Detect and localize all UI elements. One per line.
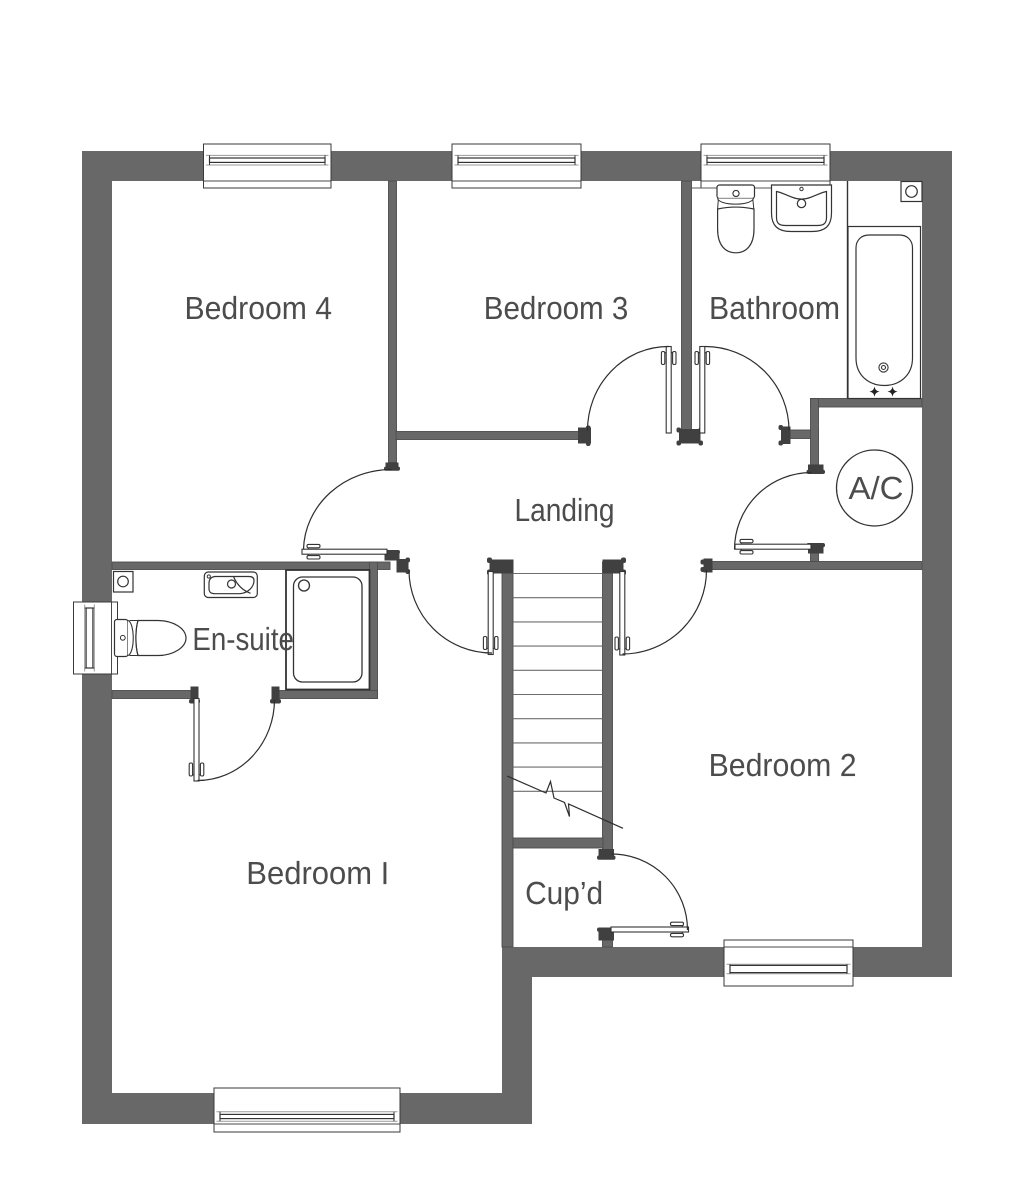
svg-text:A/C: A/C (848, 470, 903, 506)
svg-text:Landing: Landing (514, 492, 614, 528)
svg-text:Bedroom 2: Bedroom 2 (709, 747, 857, 783)
svg-text:Bedroom I: Bedroom I (246, 855, 389, 891)
svg-text:Cup’d: Cup’d (525, 875, 603, 911)
svg-text:Bathroom: Bathroom (709, 290, 840, 326)
svg-text:Bedroom 3: Bedroom 3 (484, 290, 629, 326)
svg-text:En-suite: En-suite (192, 621, 294, 657)
svg-text:Bedroom 4: Bedroom 4 (184, 290, 332, 326)
